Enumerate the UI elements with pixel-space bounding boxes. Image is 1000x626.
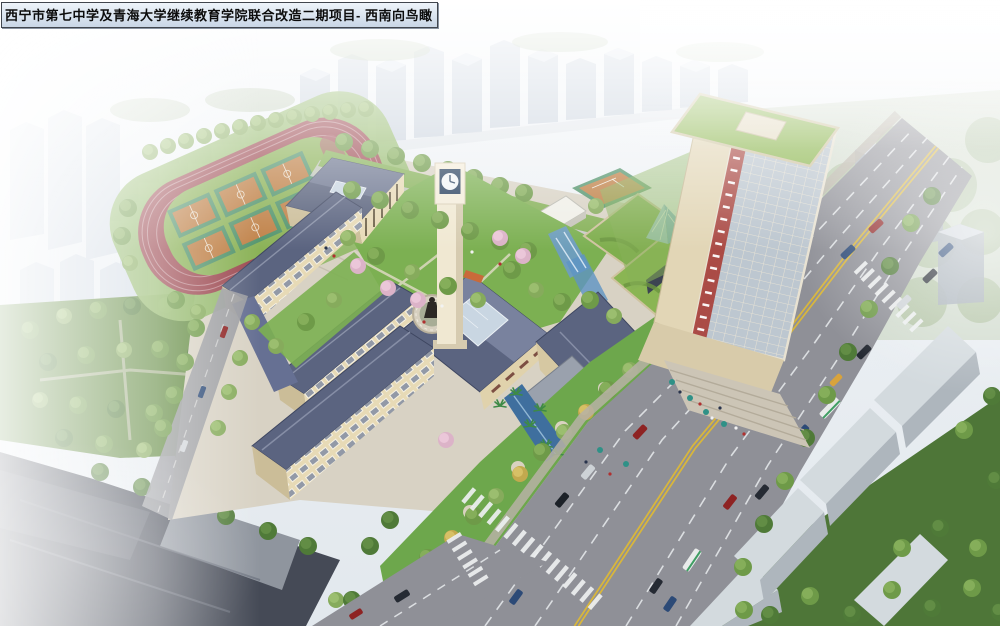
- rendering-canvas: [0, 0, 1000, 626]
- rendering-image: 西宁市第七中学及青海大学继续教育学院联合改造二期项目- 西南向鸟瞰: [0, 0, 1000, 626]
- title-label: 西宁市第七中学及青海大学继续教育学院联合改造二期项目- 西南向鸟瞰: [1, 2, 438, 28]
